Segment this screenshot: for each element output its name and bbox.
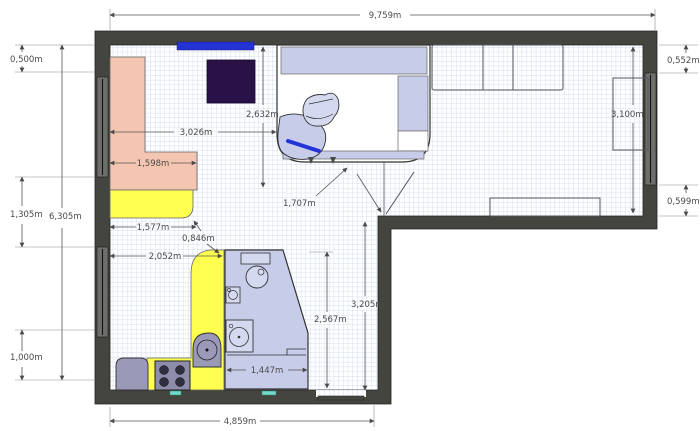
- svg-text:0,846m: 0,846m: [182, 234, 215, 244]
- dim-right-top: 0,552m: [659, 45, 700, 73]
- dark-table: [207, 60, 255, 103]
- floor-plan: 9,759m 0,500m 1,305m 6,305m 1,000m 0,552…: [0, 0, 700, 431]
- svg-text:6,305m: 6,305m: [49, 212, 82, 222]
- nook-top-band: [281, 47, 427, 74]
- washing-machine: [226, 320, 253, 352]
- svg-text:1,000m: 1,000m: [10, 353, 43, 363]
- svg-text:4,859m: 4,859m: [224, 417, 257, 427]
- corner-sink: [226, 287, 240, 303]
- nook-side-unit-lower: [398, 131, 428, 151]
- svg-text:3,205m: 3,205m: [351, 300, 384, 310]
- stove: [155, 361, 190, 390]
- svg-text:9,759m: 9,759m: [369, 11, 402, 21]
- window-right: [645, 73, 656, 185]
- svg-text:1,707m: 1,707m: [283, 199, 316, 209]
- dim-width-top: 9,759m: [110, 9, 655, 30]
- svg-text:0,599m: 0,599m: [667, 197, 700, 207]
- window-left-upper: [97, 77, 108, 177]
- svg-text:0,552m: 0,552m: [667, 56, 700, 66]
- vent-left: [170, 391, 181, 395]
- svg-text:2,567m: 2,567m: [314, 315, 347, 325]
- floor-plan-canvas: 9,759m 0,500m 1,305m 6,305m 1,000m 0,552…: [0, 0, 700, 431]
- dim-width-bottom: 4,859m: [110, 405, 374, 427]
- svg-text:1,305m: 1,305m: [10, 210, 43, 220]
- svg-text:2,052m: 2,052m: [149, 252, 182, 262]
- dim-right-bottom: 0,599m: [659, 185, 700, 216]
- window-left-lower: [97, 247, 108, 337]
- kitchen-sink: [193, 333, 221, 367]
- svg-text:0,500m: 0,500m: [10, 55, 43, 65]
- fridge: [116, 358, 148, 390]
- svg-text:1,447m: 1,447m: [251, 366, 284, 376]
- svg-text:3,100m: 3,100m: [611, 110, 644, 120]
- svg-text:3,026m: 3,026m: [180, 128, 213, 138]
- counter-top-left: [110, 190, 193, 218]
- desk-nook: [277, 45, 430, 162]
- dim-left-top: 0,500m: [10, 45, 95, 72]
- svg-text:1,598m: 1,598m: [137, 159, 170, 169]
- dim-left-bottom: 1,000m: [10, 330, 95, 380]
- vent-right: [262, 391, 276, 395]
- wall-shelf: [177, 42, 254, 50]
- entry-door: [316, 390, 366, 400]
- svg-text:1,577m: 1,577m: [137, 223, 170, 233]
- svg-text:2,632m: 2,632m: [246, 110, 279, 120]
- nook-side-unit: [398, 76, 428, 131]
